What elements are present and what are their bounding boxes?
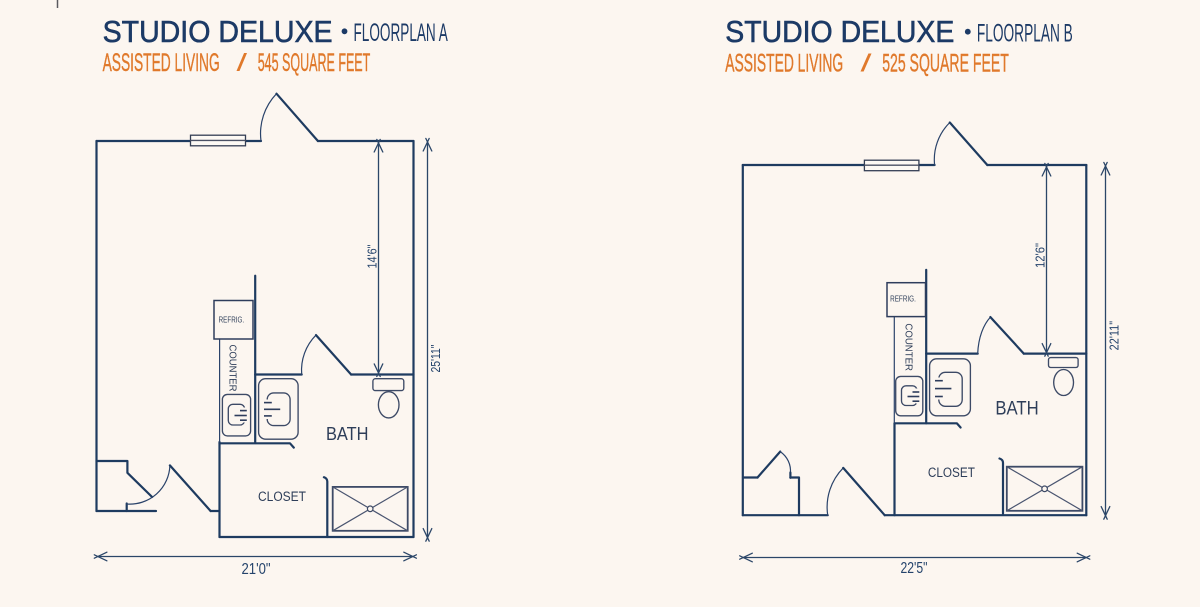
- svg-text:FLOORPLAN A: FLOORPLAN A: [354, 19, 448, 47]
- svg-text:14'6": 14'6": [366, 245, 380, 269]
- svg-text:CLOSET: CLOSET: [928, 465, 975, 480]
- svg-text:REFRIG.: REFRIG.: [890, 294, 916, 304]
- svg-text:STUDIO DELUXE: STUDIO DELUXE: [103, 14, 333, 49]
- svg-text:22'5": 22'5": [901, 560, 928, 577]
- svg-text:21'0": 21'0": [242, 561, 271, 578]
- svg-text:BATH: BATH: [995, 397, 1038, 419]
- svg-text:ASSISTED LIVING: ASSISTED LIVING: [103, 49, 220, 77]
- svg-text:25'11": 25'11": [429, 345, 443, 373]
- svg-text:COUNTER: COUNTER: [903, 323, 915, 371]
- svg-text:/: /: [237, 49, 248, 77]
- svg-text:FLOORPLAN B: FLOORPLAN B: [977, 19, 1073, 47]
- svg-text:REFRIG.: REFRIG.: [219, 315, 245, 325]
- svg-text:COUNTER: COUNTER: [227, 345, 239, 392]
- svg-text:12'6": 12'6": [1034, 243, 1048, 268]
- svg-text:ASSISTED LIVING: ASSISTED LIVING: [725, 49, 843, 77]
- svg-text:CLOSET: CLOSET: [258, 489, 306, 504]
- svg-text:STUDIO DELUXE: STUDIO DELUXE: [725, 14, 954, 49]
- svg-text:/: /: [861, 49, 872, 77]
- svg-text:BATH: BATH: [326, 424, 369, 444]
- svg-text:22'11": 22'11": [1108, 321, 1122, 351]
- svg-text:525 SQUARE FEET: 525 SQUARE FEET: [882, 49, 1009, 77]
- svg-text:545 SQUARE FEET: 545 SQUARE FEET: [258, 49, 371, 77]
